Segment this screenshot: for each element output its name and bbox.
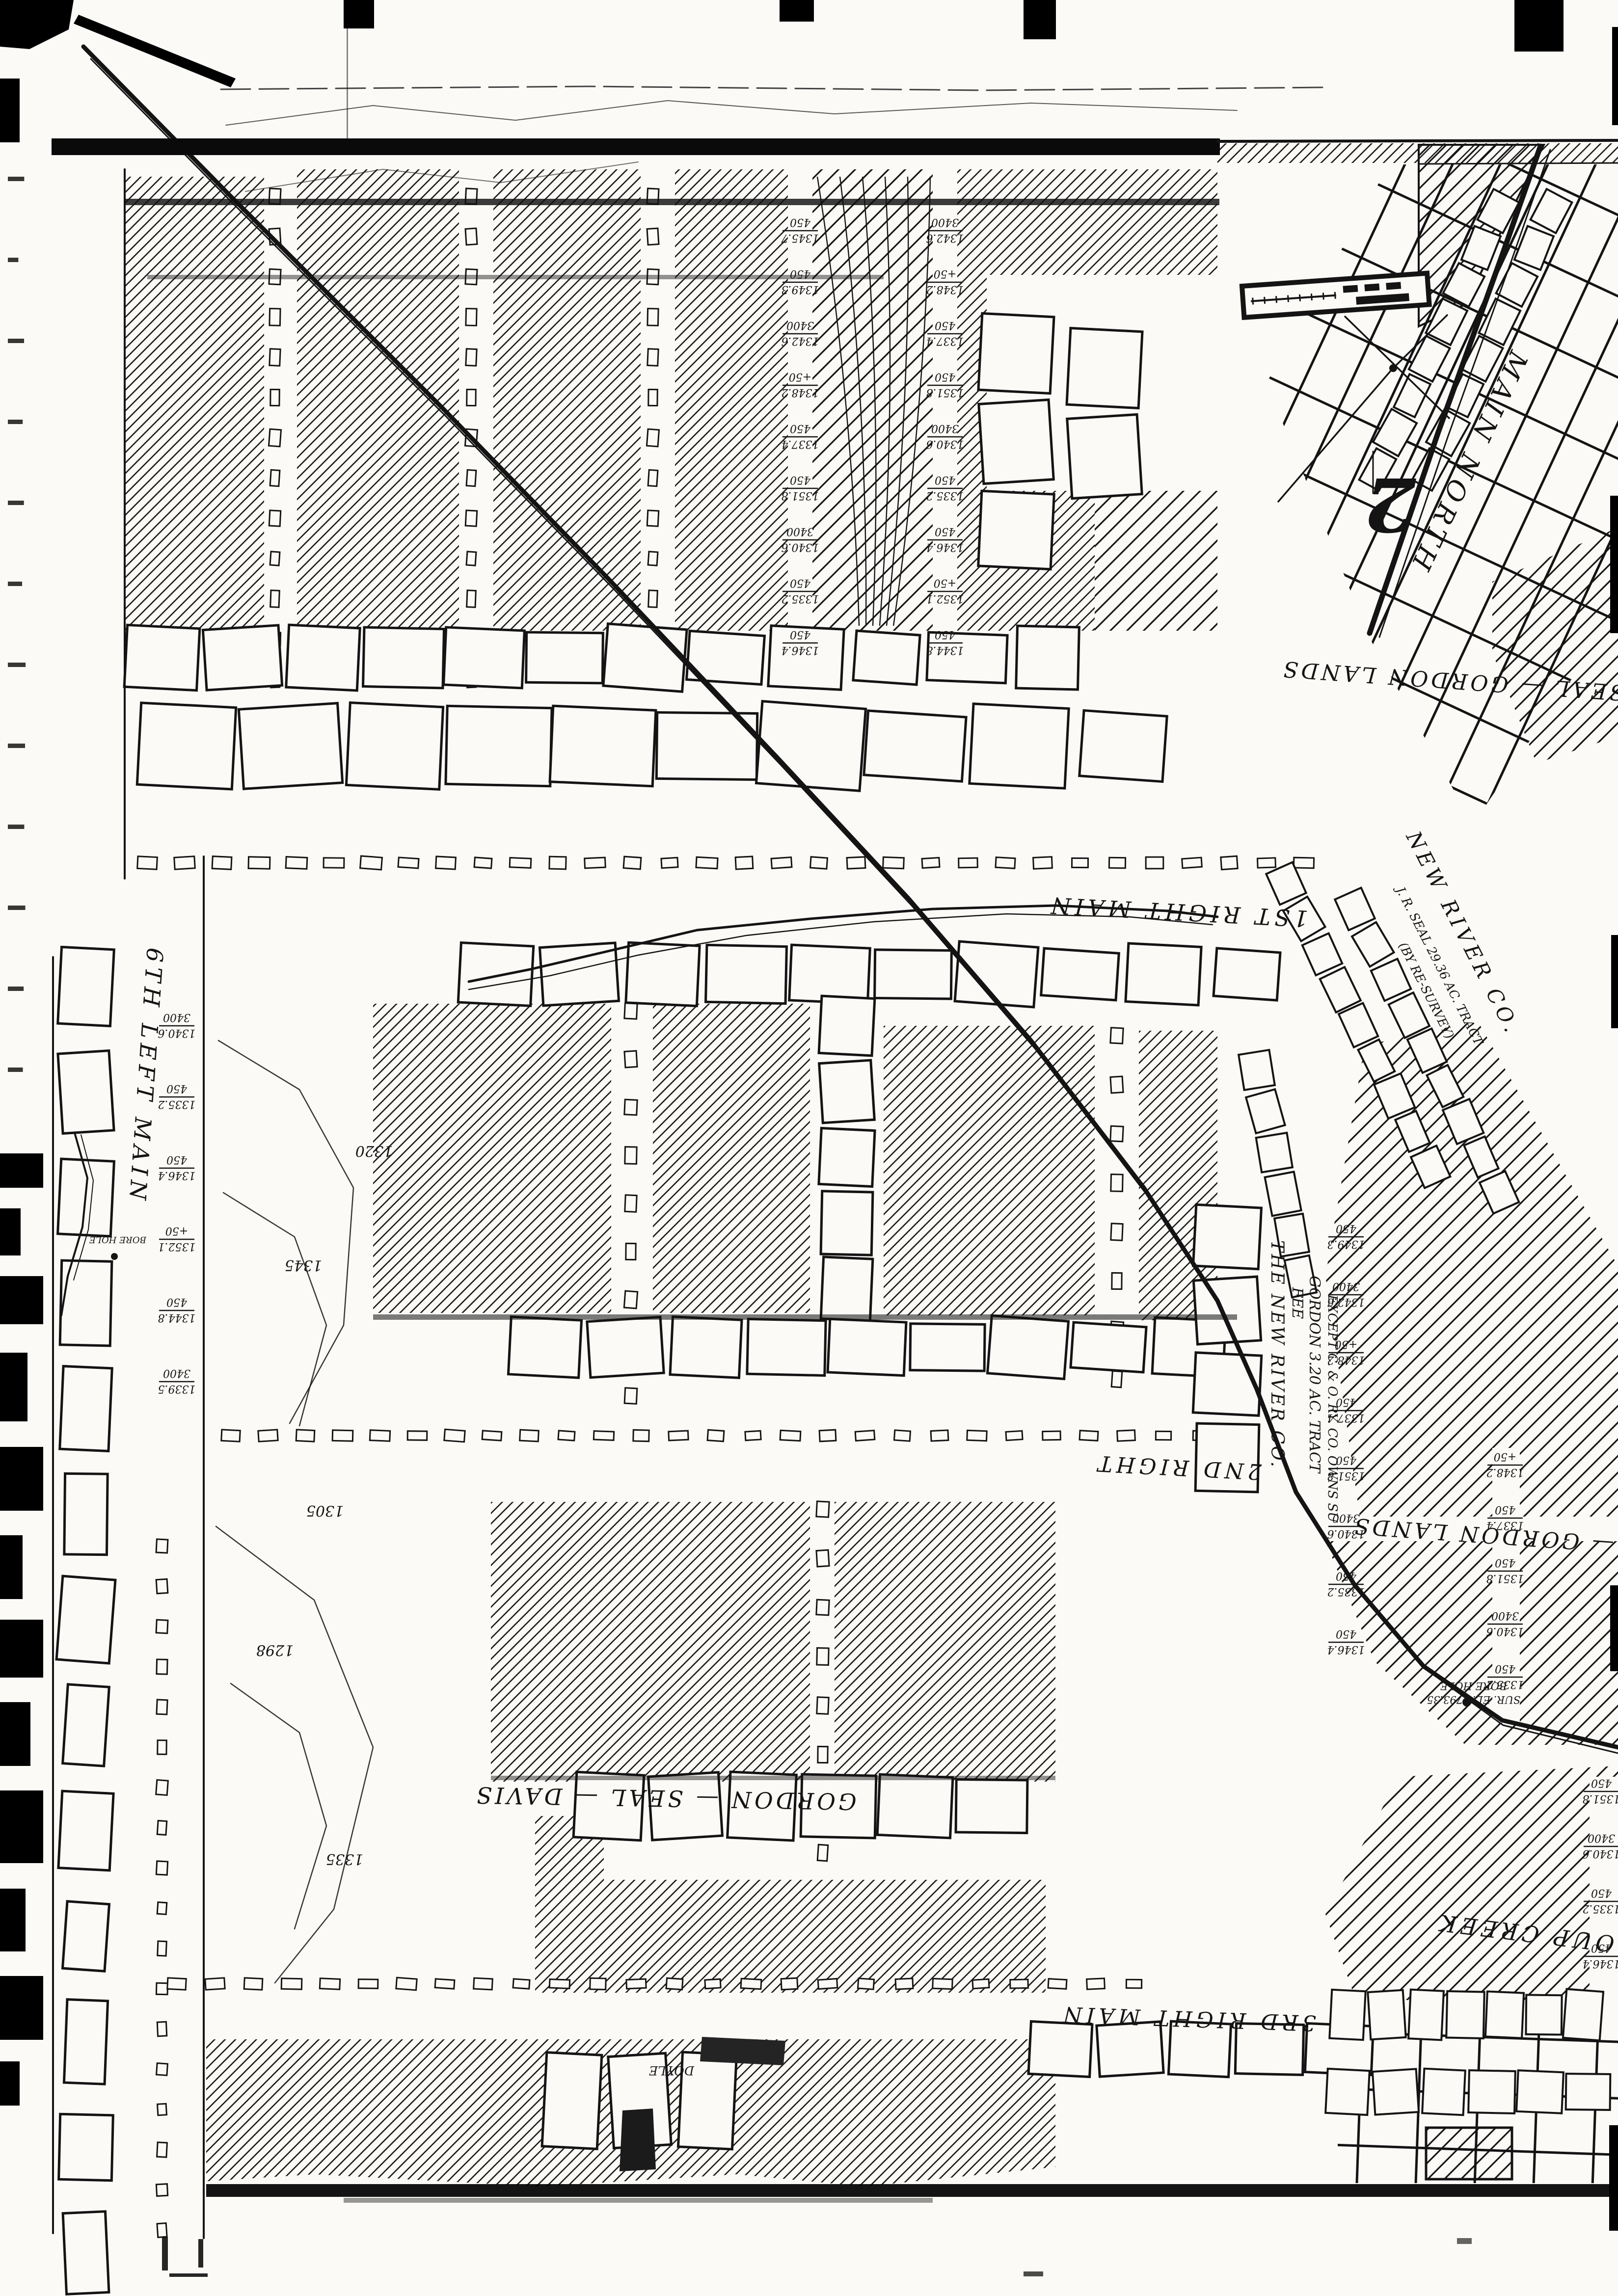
doyle-label: DOYLE [649,2063,695,2078]
panel-top-3 [493,169,641,631]
svg-text:450: 450 [1495,1556,1516,1569]
checker-l8 [0,1702,30,1766]
smear-bottom-2 [344,2198,933,2203]
elev-1345: 1345 [285,1256,322,1274]
checker-l9 [0,1790,43,1863]
checker-l11 [0,1976,43,2040]
elev-1298: 1298 [256,1641,294,1658]
svg-text:1340.6: 1340.6 [782,541,819,553]
svg-text:450: 450 [166,1082,188,1095]
margin-mark-t2 [780,0,814,22]
svg-text:1339.5: 1339.5 [158,1383,196,1395]
panel-m4 [1139,1031,1217,1320]
svg-text:3400: 3400 [163,1011,190,1023]
elev-1335: 1335 [326,1850,363,1868]
svg-text:3400: 3400 [786,319,814,331]
panel-right-mid [1325,1021,1618,1517]
svg-text:1351.8: 1351.8 [1583,1792,1618,1805]
svg-text:450: 450 [1336,1628,1357,1640]
margin-mark-t1 [344,0,374,28]
smear-4 [491,1776,1055,1780]
svg-text:1344.8: 1344.8 [158,1311,196,1324]
svg-text:1346.4: 1346.4 [1583,1957,1618,1970]
svg-text:1337.4: 1337.4 [782,438,819,450]
road-junction-dot [1389,364,1397,372]
svg-text:3400: 3400 [931,216,959,228]
scale-bar [1242,273,1429,318]
se-parcel-row-1 [1329,1989,1603,2041]
svg-text:1346.4: 1346.4 [782,644,819,656]
svg-text:1352.1: 1352.1 [158,1240,196,1253]
svg-text:1335.2: 1335.2 [1327,1585,1365,1598]
svg-text:1335.2: 1335.2 [782,592,819,605]
contour-4 [231,1683,326,1929]
checker-l10 [0,1889,26,1951]
svg-text:450: 450 [166,1153,188,1166]
the-new-river-co-label: THE NEW RIVER CO. [1267,1240,1287,1469]
svg-text:+50: +50 [1494,1450,1516,1463]
checker-l1 [0,1153,43,1188]
bore-hole-west-label: BORE HOLE [89,1234,147,1245]
svg-text:450: 450 [166,1296,188,1308]
margin-mark-br [1457,2238,1472,2244]
smear-bottom [206,2184,1618,2197]
svg-text:1346.4: 1346.4 [926,541,964,553]
border-top-thin-2 [1419,163,1618,164]
svg-text:1342.6: 1342.6 [782,335,819,347]
svg-text:450: 450 [935,371,956,383]
svg-text:+50: +50 [789,371,811,383]
corridor-second-right [201,1443,1237,1492]
svg-text:1346.4: 1346.4 [1327,1643,1365,1655]
svg-text:450: 450 [935,474,956,486]
edge-right-1 [1612,27,1618,125]
svg-text:1348.2: 1348.2 [782,386,819,399]
slot-parcels-middle [819,996,875,1321]
svg-text:450: 450 [790,628,811,641]
border-top-thin [1217,140,1618,141]
edge-right-4 [1610,1585,1618,1671]
scratch-top [221,86,1325,90]
scanned-map-page: 1345.74501349.34501342.634001348.2+50133… [0,0,1618,2296]
svg-text:450: 450 [1495,1662,1516,1675]
first-right-pillars [137,856,1314,870]
parcel-cluster-near-sheet-number-2 [1067,328,1142,498]
elev-1320: 1320 [355,1142,393,1159]
elev-1305: 1305 [306,1502,344,1519]
parcel-row-above-second-right [508,1315,1225,1379]
fee-label: FEE [1289,1287,1306,1319]
second-right-pillars [221,1429,1246,1442]
panel-m3 [884,1026,1095,1315]
svg-text:450: 450 [790,474,811,486]
svg-text:450: 450 [790,422,811,434]
edge-left-top [0,79,20,142]
crease-1 [226,101,1237,125]
panel-right-mid-2 [1325,1541,1618,1745]
se-parcel-row-2 [1325,2069,1610,2115]
svg-text:1335.2: 1335.2 [1583,1902,1618,1915]
margin-mark-bc [1024,2271,1043,2276]
svg-text:3400: 3400 [163,1367,190,1379]
checker-l12 [0,2061,20,2106]
svg-text:+50: +50 [934,577,956,589]
gordon-tract-label: GORDON 3.20 AC. TRACT [1306,1276,1323,1474]
svg-text:1345.7: 1345.7 [782,232,819,244]
checker-l3 [0,1276,43,1324]
checker-l7 [0,1620,43,1678]
panel-top-6 [957,169,1217,275]
svg-text:450: 450 [1495,1503,1516,1516]
svg-text:1335.2: 1335.2 [926,489,964,502]
svg-text:+50: +50 [165,1225,188,1237]
svg-text:3400: 3400 [931,422,959,434]
margin-mark-bl2 [198,2239,203,2268]
ink-blob-bottom-2 [700,2037,785,2065]
map-image: 1345.74501349.34501342.634001348.2+50133… [0,0,1618,2296]
svg-text:3400: 3400 [1332,1280,1360,1292]
margin-mark-bl3 [169,2273,208,2277]
checker-l2 [0,1208,21,1255]
svg-text:450: 450 [1591,1777,1612,1789]
panel-d-left [535,1816,604,1993]
except-ry-label: EXCEPT C. & O. RY. CO. OWNS SU [1325,1294,1340,1523]
svg-text:1349.3: 1349.3 [782,283,819,295]
svg-text:450: 450 [790,267,811,280]
panel-top-1 [125,177,265,631]
svg-text:450: 450 [1591,1887,1612,1899]
panel-top-8 [1095,491,1217,631]
svg-text:1340.6: 1340.6 [1583,1847,1618,1860]
topleft-diagonal-mark [74,15,236,87]
checker-l5 [0,1447,43,1511]
panel-top-4 [675,169,788,631]
gordon-seal-davis-label: GORDON — SEAL — DAVIS [473,1782,857,1815]
svg-text:1351.8: 1351.8 [782,489,819,502]
bore-hole-label: BORE HOLE [1440,1680,1508,1692]
lot-hatched-se [1426,2128,1512,2179]
smear-2 [147,275,884,279]
panel-m1 [373,1004,611,1313]
svg-text:450: 450 [790,216,811,228]
panel-d [604,1880,1046,1993]
svg-text:1344.8: 1344.8 [926,644,964,656]
svg-text:1342.6: 1342.6 [926,232,964,244]
edge-right-2 [1610,496,1618,633]
svg-text:450: 450 [935,628,956,641]
svg-text:1348.2: 1348.2 [926,283,964,295]
parcel-row-north-b [137,701,1167,791]
panel-c2 [835,1502,1055,1782]
svg-text:1340.6: 1340.6 [158,1027,196,1039]
contour-2 [223,1193,326,1426]
svg-text:1352.1: 1352.1 [926,592,964,605]
margin-mark-bl1 [162,2237,168,2270]
svg-text:450: 450 [935,319,956,331]
svg-text:450: 450 [935,525,956,537]
panel-c1 [491,1502,810,1782]
svg-text:450: 450 [1336,1222,1357,1234]
panel-top-fan [812,169,933,631]
svg-text:+50: +50 [934,267,956,280]
checker-l6 [0,1535,23,1599]
svg-text:450: 450 [790,577,811,589]
svg-text:1340.6: 1340.6 [1486,1625,1524,1637]
checker-l4 [0,1353,27,1421]
parcel-cluster-near-sheet-number [978,313,1054,569]
panel-m2 [653,1004,810,1313]
margin-mark-t4 [1514,0,1564,52]
edge-right-3 [1611,935,1618,1028]
svg-text:1340.6: 1340.6 [926,438,964,450]
svg-text:1349.3: 1349.3 [1327,1238,1365,1250]
svg-text:3400: 3400 [1491,1609,1519,1622]
svg-text:1337.4: 1337.4 [926,335,964,347]
contour-3 [216,1526,373,1983]
svg-text:450: 450 [1336,1570,1357,1582]
border-top-heavy [52,138,1220,155]
svg-text:1351.8: 1351.8 [926,386,964,399]
sheet-number: 2 [1365,461,1416,547]
panel-loup-creek [1325,1766,1618,2000]
bore-hole-elevation: SUR. EL. 1793.35 [1427,1694,1521,1706]
corner-blob-topleft [0,0,74,49]
svg-text:1348.2: 1348.2 [1486,1466,1524,1478]
smear-1 [125,199,1219,205]
smear-3 [373,1314,1237,1320]
svg-text:3400: 3400 [786,525,814,537]
margin-mark-t3 [1024,0,1056,39]
edge-right-5 [1609,2125,1618,2231]
ink-blob-bottom-1 [620,2109,656,2171]
svg-text:1351.8: 1351.8 [1486,1572,1524,1584]
left-margin-ticks [8,177,26,1072]
bore-hole-west-dot [111,1253,118,1260]
svg-text:1335.2: 1335.2 [158,1098,196,1110]
svg-text:1346.4: 1346.4 [158,1169,196,1181]
svg-text:3400: 3400 [1588,1832,1615,1844]
